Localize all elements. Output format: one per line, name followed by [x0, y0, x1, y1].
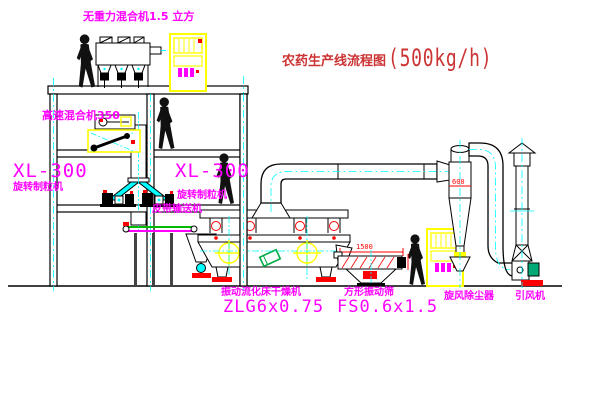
worker-1 [77, 34, 95, 87]
exhaust-pipe [469, 143, 513, 276]
label-gravity-mixer: 无重力混合机1.5 立方 [83, 11, 194, 22]
dim-cyclone-600: 600 [452, 179, 465, 186]
belt-conveyor [123, 222, 197, 286]
label-granulator-right-model: XL-300 [175, 162, 250, 181]
label-high-speed-mixer: 高速混合机350 [42, 110, 120, 121]
label-granulator-left-model: XL-300 [13, 162, 88, 181]
dim-screen-1500: 1500 [356, 244, 373, 251]
label-fan: 引风机 [515, 292, 545, 302]
worker-2 [157, 97, 175, 149]
diagram-title-capacity: (500kg/h) [388, 46, 527, 70]
diagram-title: 农药生产线流程图 [282, 55, 386, 68]
induced-draft-fan [512, 261, 543, 286]
worker-4 [408, 234, 426, 285]
label-granulator-left-name: 旋转制粒机 [13, 183, 63, 193]
granulator-discharge-pipe [131, 212, 146, 225]
exhaust-duct [252, 161, 450, 218]
gravity-free-mixer [96, 37, 166, 88]
fluid-bed-dryer [198, 210, 352, 282]
process-flow-diagram: 无重力混合机1.5 立方 农药生产线流程图 (500kg/h) 高速混合机350… [0, 0, 600, 403]
label-granulator-right-name: 旋转制粒机 [177, 191, 227, 201]
label-cyclone: 旋风除尘器 [444, 292, 494, 302]
label-dryer-model: ZLG6x0.75 [223, 299, 324, 316]
label-screen-model: FS0.6x1.5 [337, 299, 438, 316]
control-cabinet-1 [170, 34, 206, 91]
label-belt-conveyor: 皮带输送机 [152, 205, 202, 215]
